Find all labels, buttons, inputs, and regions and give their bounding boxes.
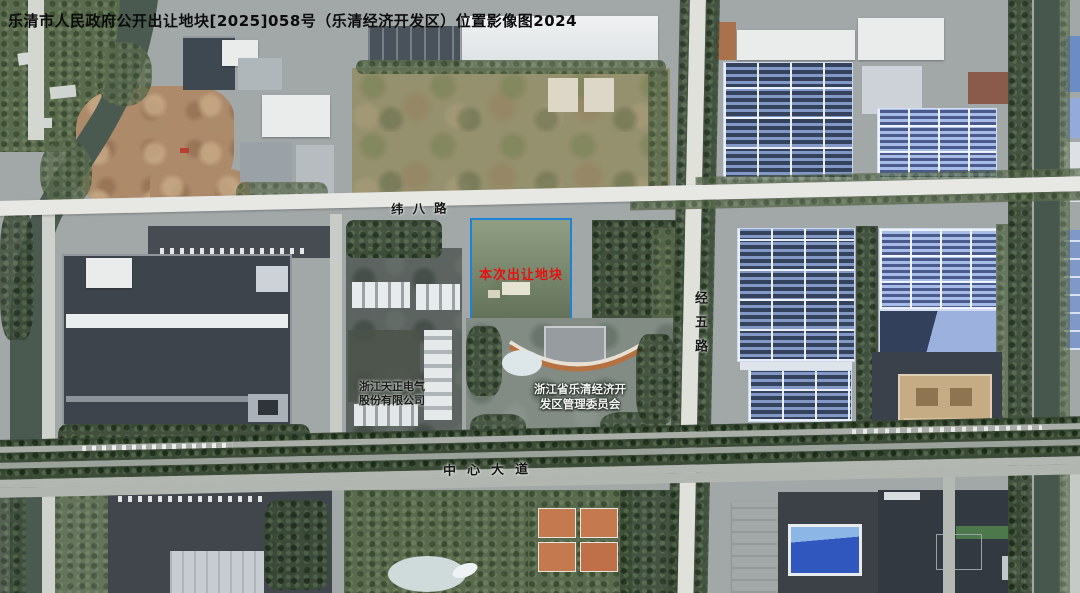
river [0,0,1080,593]
canal-trees-east [1059,0,1070,593]
landmark-label-line: 股份有限公司 [344,394,440,408]
landmark-label-guanweihui: 浙江省乐清经济开 发区管理委员会 [512,382,648,412]
minor-road [330,214,342,460]
road-label-jingwu: 经五路 [690,291,709,363]
riverbank-trees [0,210,34,340]
canal [1034,0,1060,593]
map-title: 乐清市人民政府公开出让地块[2025]058号（乐清经济开发区）位置影像图202… [8,10,577,31]
riverbank-trees [96,42,152,106]
landmark-label-line: 浙江天正电气 [344,380,440,394]
landmark-label-line: 浙江省乐清经济开 [512,382,648,397]
minor-road-west [42,205,55,593]
riverbank-trees [40,140,92,206]
road-label-weiba: 纬八路 [391,197,456,217]
landmark-label-tianzheng: 浙江天正电气 股份有限公司 [344,380,440,408]
canal-trees-west [1008,0,1032,593]
satellite-map: 本次出让地块 [0,0,1080,593]
landmark-label-line: 发区管理委员会 [512,397,648,412]
road-label-zhongxin: 中心大道 [443,458,539,479]
